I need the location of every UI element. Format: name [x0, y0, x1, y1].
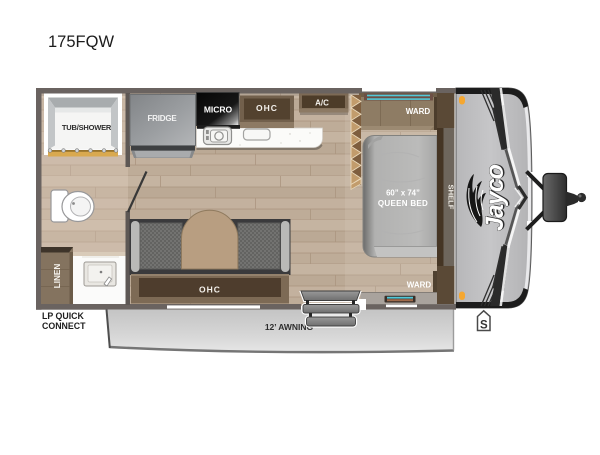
svg-text:QUEEN BED: QUEEN BED: [378, 199, 428, 208]
svg-text:WARD: WARD: [407, 281, 432, 290]
svg-text:175FQW: 175FQW: [48, 33, 114, 51]
svg-text:WARD: WARD: [406, 107, 431, 116]
svg-text:OHC: OHC: [199, 285, 221, 295]
svg-text:TUB/SHOWER: TUB/SHOWER: [62, 123, 112, 132]
svg-text:LP QUICK: LP QUICK: [42, 311, 85, 321]
svg-text:A/C: A/C: [315, 99, 329, 108]
svg-text:MICRO: MICRO: [204, 105, 233, 115]
svg-text:SHELF: SHELF: [447, 185, 456, 210]
svg-text:CONNECT: CONNECT: [42, 321, 86, 331]
svg-text:FRIDGE: FRIDGE: [147, 114, 177, 123]
svg-text:60” x 74”: 60” x 74”: [386, 188, 420, 197]
svg-text:LINEN: LINEN: [53, 264, 62, 289]
svg-text:OHC: OHC: [256, 103, 278, 113]
svg-text:S: S: [480, 320, 488, 332]
svg-text:Jayco: Jayco: [481, 164, 509, 231]
